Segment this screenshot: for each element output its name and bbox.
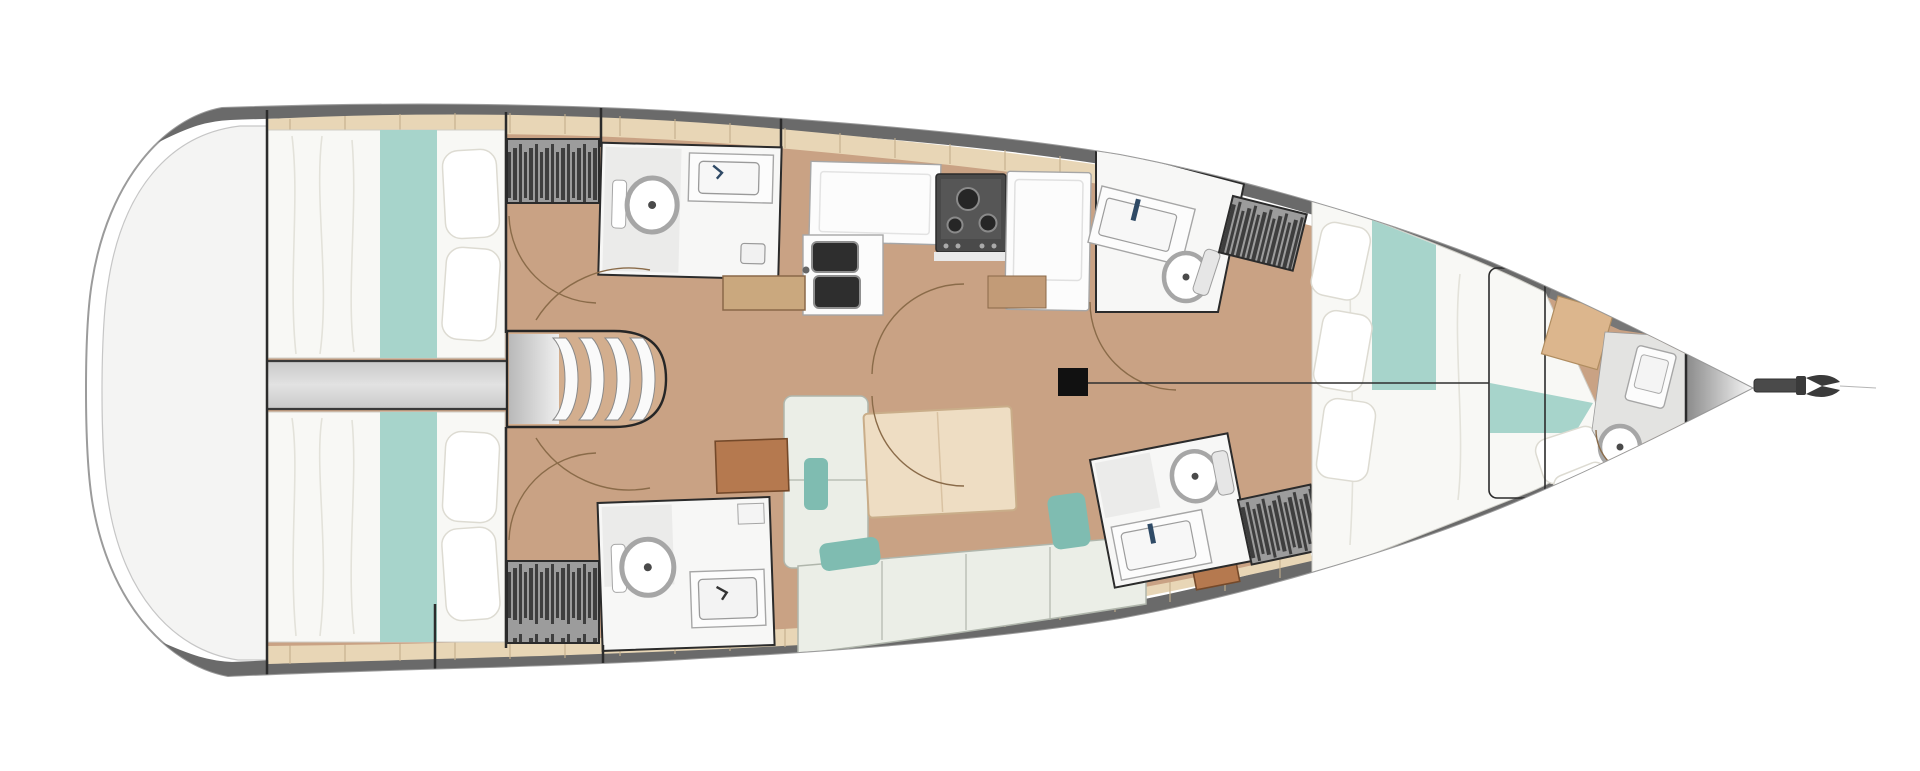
- pillow: [442, 431, 501, 524]
- head-aft-starboard: [598, 497, 775, 651]
- aft-cabin-starboard: [268, 412, 505, 642]
- yacht-floor-plan: [0, 0, 1920, 771]
- aft-port-teal-runner: [380, 130, 437, 358]
- companionway-stairs: [507, 331, 666, 427]
- nav-desk: [715, 439, 789, 493]
- hanging-locker-aft-starboard: [507, 561, 599, 643]
- galley-sideboard: [723, 276, 805, 310]
- head-aft-port: [598, 143, 781, 280]
- head-forward-port: [1088, 145, 1244, 312]
- aft-cabin-port: [268, 130, 505, 358]
- teal-cushion: [1046, 492, 1091, 551]
- toilet-tank: [612, 180, 627, 228]
- interior-layers: [150, 98, 1752, 692]
- pillow: [441, 246, 501, 342]
- forward-teal-runner: [1372, 220, 1436, 390]
- pillow: [442, 149, 501, 240]
- hanging-locker-forward-starboard: [1238, 485, 1324, 565]
- stove: [934, 174, 1008, 261]
- shower-drain: [741, 243, 766, 264]
- pillow: [441, 526, 501, 622]
- sink-basin: [814, 276, 860, 308]
- sink-basin: [812, 242, 858, 272]
- bow-head: [1592, 332, 1686, 478]
- galley-floor-locker: [988, 276, 1046, 308]
- engine-compartment: [267, 361, 507, 409]
- yacht-floor-plan-canvas: [0, 0, 1920, 771]
- hanging-locker-aft-port: [507, 139, 599, 203]
- mast-step: [1058, 368, 1088, 396]
- shelf: [738, 503, 765, 524]
- head-forward-starboard: [1090, 433, 1252, 587]
- teal-cushion: [804, 458, 828, 510]
- bowsprit-anchor: [1754, 375, 1876, 397]
- aft-starboard-teal-runner: [380, 412, 437, 642]
- galley-faucet: [803, 267, 810, 274]
- pillow: [1315, 397, 1378, 483]
